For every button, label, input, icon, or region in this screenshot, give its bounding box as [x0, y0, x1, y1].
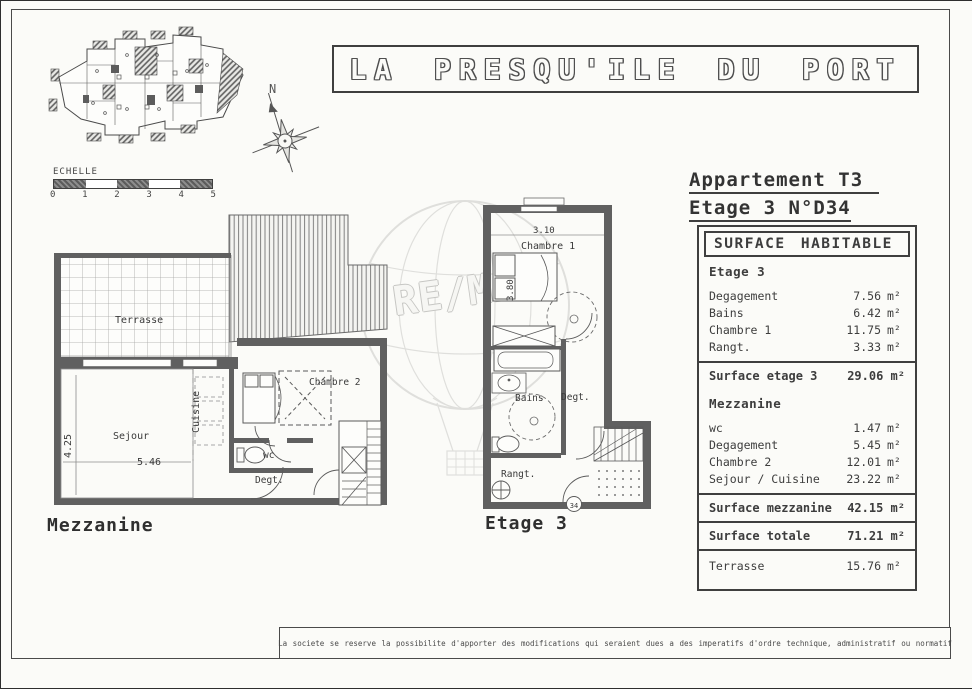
table-section-mezzanine: Mezzanine wc 1.47 m² Degagement 5.45 m² …: [699, 389, 915, 493]
scale-label: ECHELLE: [53, 167, 223, 177]
toilet: [492, 436, 519, 452]
sink: [492, 373, 526, 393]
row-unit: m²: [881, 322, 905, 339]
toilet: [237, 447, 265, 463]
dim-label-546: 5.46: [137, 457, 161, 469]
disclaimer-box: La societe se reserve la possibilite d'a…: [279, 627, 951, 659]
row-unit: m²: [881, 339, 905, 356]
row-unit: m²: [881, 305, 905, 322]
table-row: Chambre 2 12.01 m²: [709, 454, 905, 471]
row-label: Sejour / Cuisine: [709, 471, 835, 488]
dim-label-425: 4.25: [63, 434, 75, 458]
surface-table: SURFACE HABITABLE Etage 3 Degagement 7.5…: [697, 225, 917, 591]
floorplan-sheet: N ECHELLE 0 1 2 3 4 5 LA PRESQU'ILE DU P…: [0, 0, 972, 689]
table-row: Rangt. 3.33 m²: [709, 339, 905, 356]
disclaimer-text: La societe se reserve la possibilite d'a…: [278, 639, 952, 648]
row-value: 1.47: [835, 420, 881, 437]
compass-rose: [247, 77, 323, 177]
room-label-chambre1: Chambre 1: [521, 241, 575, 253]
subtotal-row-etage3: Surface etage 3 29.06 m²: [699, 361, 915, 389]
subtotal-row-mezzanine: Surface mezzanine 42.15 m²: [699, 493, 915, 521]
scale-segment: [180, 180, 212, 188]
total-label: Surface totale: [709, 529, 810, 543]
circled-cross-symbol: [492, 481, 510, 499]
apartment-header: Appartement T3 Etage 3 N°D34: [689, 169, 917, 225]
plan-mezzanine: [43, 199, 395, 519]
row-value: 6.42: [835, 305, 881, 322]
unit-badge: 34: [567, 500, 581, 512]
subtotal-label: Surface mezzanine: [709, 501, 832, 515]
table-row: Sejour / Cuisine 23.22 m²: [709, 471, 905, 488]
plan-caption-mezzanine: Mezzanine: [47, 515, 154, 536]
stairs: [594, 427, 643, 461]
table-row: Chambre 1 11.75 m²: [709, 322, 905, 339]
total-row: Surface totale 71.21 m²: [699, 521, 915, 549]
subtotal-label: Surface etage 3: [709, 369, 817, 383]
row-value: 11.75: [835, 322, 881, 339]
surface-table-title: SURFACE HABITABLE: [704, 231, 910, 257]
room-label-degt-etage3: Degt.: [561, 392, 590, 404]
row-label: Degagement: [709, 288, 835, 305]
row-label: Terrasse: [709, 559, 835, 573]
room-label-rangt: Rangt.: [501, 469, 535, 481]
row-value: 12.01: [835, 454, 881, 471]
row-value: 5.45: [835, 437, 881, 454]
table-row: Degagement 7.56 m²: [709, 288, 905, 305]
door-arcs: [251, 426, 339, 499]
room-label-sejour: Sejour: [113, 431, 149, 443]
site-plan: [47, 25, 257, 165]
table-section-etage3: Etage 3 Degagement 7.56 m² Bains 6.42 m²…: [699, 257, 915, 361]
title-banner: LA PRESQU'ILE DU PORT: [332, 45, 919, 93]
row-label: Chambre 1: [709, 322, 835, 339]
apartment-title: Appartement T3: [689, 169, 879, 194]
scale-segment: [117, 180, 149, 188]
row-label: Rangt.: [709, 339, 835, 356]
scale-segment: [149, 180, 181, 188]
page-title: LA PRESQU'ILE DU PORT: [349, 53, 901, 86]
scale-segment: [86, 180, 118, 188]
row-label: Bains: [709, 305, 835, 322]
row-value: 23.22: [835, 471, 881, 488]
row-unit: m²: [881, 437, 905, 454]
row-value: 7.56: [835, 288, 881, 305]
wardrobe: [493, 326, 555, 346]
bed-chambre1: [493, 253, 557, 301]
floor-title: Etage 3 N°D34: [689, 197, 851, 222]
room-label-bains: Bains: [515, 393, 544, 405]
room-label-degt-mezzanine: Degt.: [255, 475, 284, 487]
plan-caption-etage3: Etage 3: [485, 513, 568, 534]
row-value: 15.76: [835, 559, 881, 573]
subtotal-value: 29.06 m²: [847, 369, 905, 383]
scale-bar: [53, 179, 213, 189]
stairs-dotted: [598, 470, 640, 496]
table-row: Degagement 5.45 m²: [709, 437, 905, 454]
row-label: Degagement: [709, 437, 835, 454]
compass-north-label: N: [269, 83, 276, 95]
row-unit: m²: [881, 454, 905, 471]
row-unit: m²: [881, 420, 905, 437]
total-value: 71.21 m²: [847, 529, 905, 543]
terrasse-area: [59, 257, 229, 357]
scale: ECHELLE 0 1 2 3 4 5: [53, 167, 223, 200]
row-label: wc: [709, 420, 835, 437]
subtotal-value: 42.15 m²: [847, 501, 905, 515]
section-heading: Etage 3: [709, 264, 905, 279]
row-unit: m²: [881, 288, 905, 305]
room-label-terrasse: Terrasse: [115, 315, 163, 327]
row-label: Chambre 2: [709, 454, 835, 471]
section-heading: Mezzanine: [709, 396, 905, 411]
table-row: wc 1.47 m²: [709, 420, 905, 437]
row-value: 3.33: [835, 339, 881, 356]
terrasse-row: Terrasse 15.76 m²: [699, 549, 915, 589]
door-arcs: [563, 313, 604, 502]
stairs: [339, 421, 381, 505]
row-unit: m²: [881, 471, 905, 488]
scale-segment: [54, 180, 86, 188]
dim-label-310: 3.10: [533, 225, 555, 237]
bed-chambre2: [243, 373, 281, 423]
room-label-wc: wc: [263, 450, 274, 462]
bathtub: [494, 349, 560, 371]
room-label-cuisine: Cuisine: [191, 391, 203, 433]
room-label-chambre2: Chambre 2: [309, 377, 360, 389]
table-row: Bains 6.42 m²: [709, 305, 905, 322]
row-unit: m²: [881, 559, 905, 573]
dim-label-380: 3.80: [505, 279, 517, 301]
roof-area: [229, 215, 387, 342]
